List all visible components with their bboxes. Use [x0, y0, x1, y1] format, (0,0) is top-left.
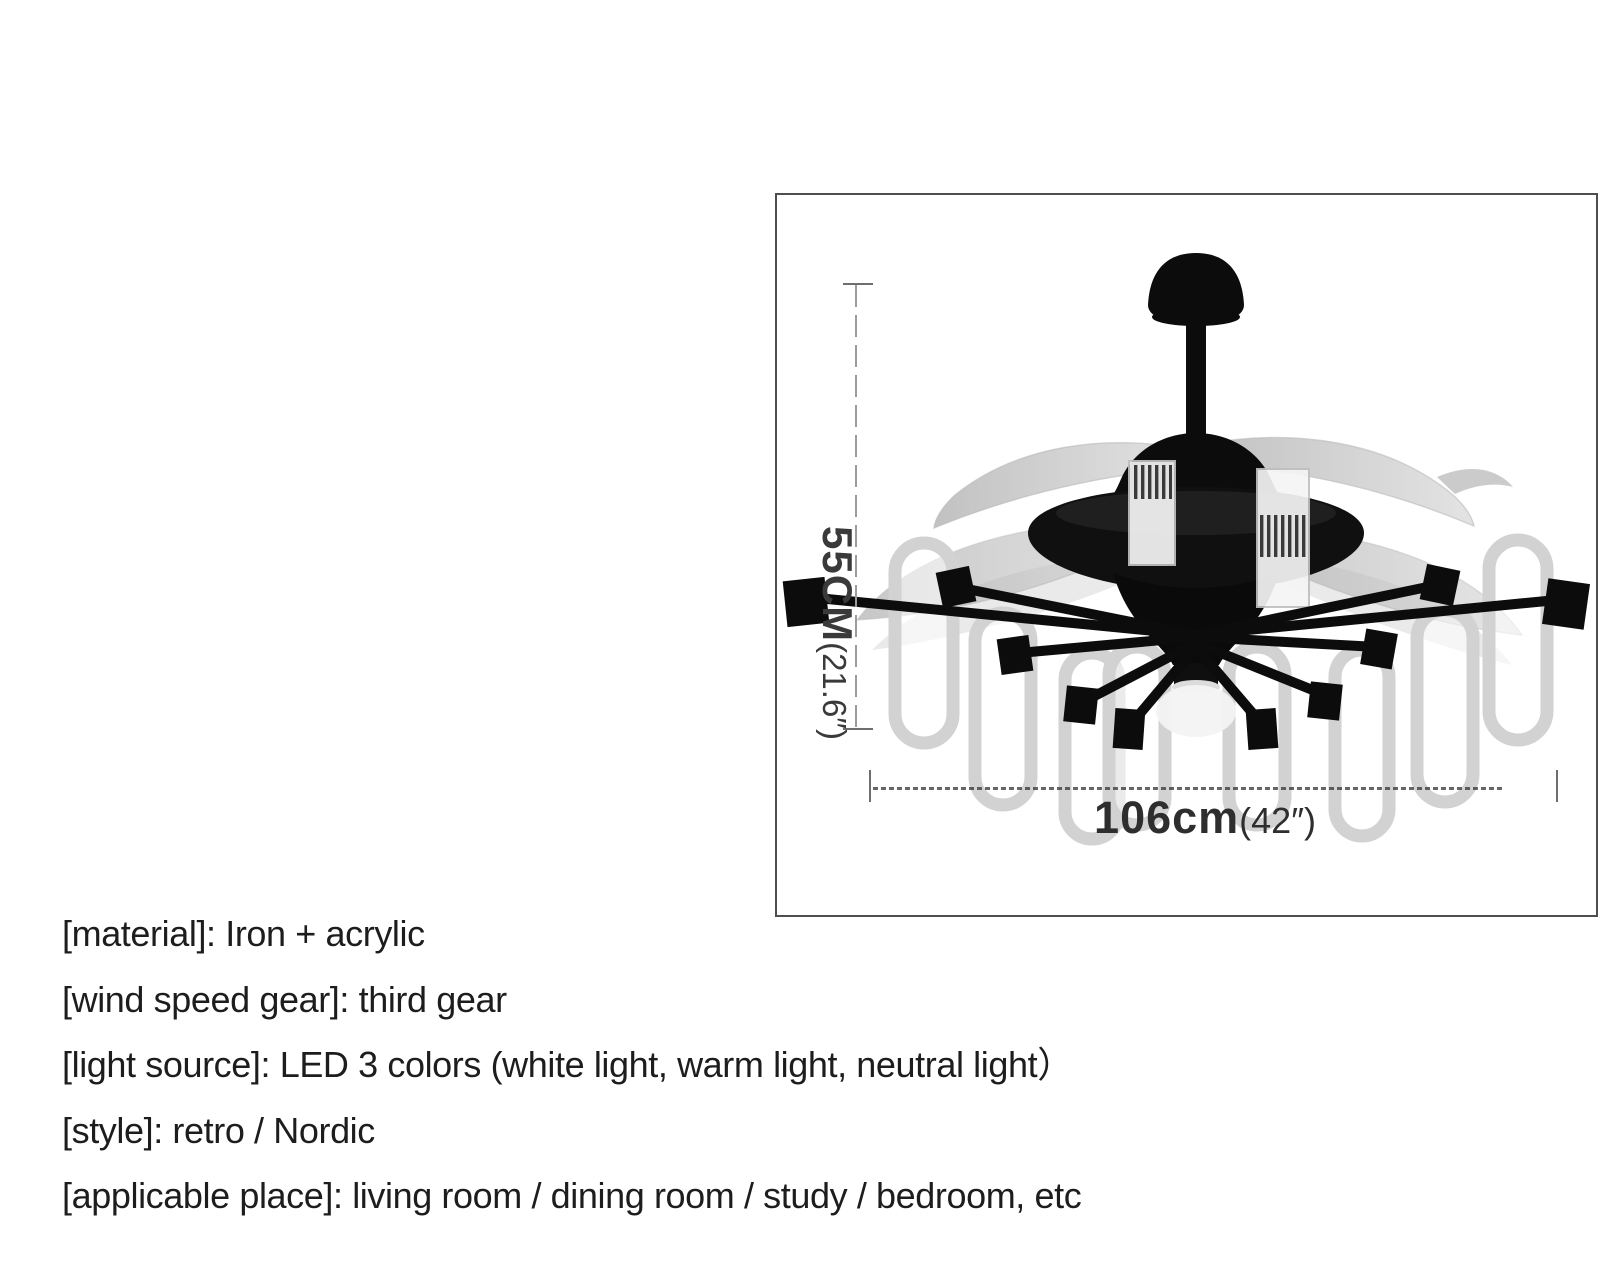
width-dimension-line [873, 787, 1505, 790]
spec-line-light-source: [light source]: LED 3 colors (white ligh… [62, 1032, 1081, 1098]
spec-line-wind-speed: [wind speed gear]: third gear [62, 967, 1081, 1033]
height-dimension-label: 55CM(21.6″) [809, 523, 861, 743]
width-dimension-tick-left [869, 770, 871, 802]
width-value: 106cm [1094, 792, 1239, 843]
width-inches: (42″) [1239, 800, 1316, 841]
height-inches: (21.6″) [815, 642, 853, 740]
spec-line-applicable-place: [applicable place]: living room / dining… [62, 1163, 1081, 1229]
width-dimension-label: 106cm(42″) [1040, 792, 1370, 844]
height-dimension-tick-top [843, 283, 873, 285]
product-spec-page: 55CM(21.6″) 106cm(42″) [material]: Iron … [0, 0, 1620, 1284]
height-value: 55CM [813, 526, 861, 642]
spec-line-style: [style]: retro / Nordic [62, 1098, 1081, 1164]
spec-list: [material]: Iron + acrylic [wind speed g… [62, 901, 1081, 1229]
width-dimension-tick-right [1556, 770, 1558, 802]
spec-line-material: [material]: Iron + acrylic [62, 901, 1081, 967]
